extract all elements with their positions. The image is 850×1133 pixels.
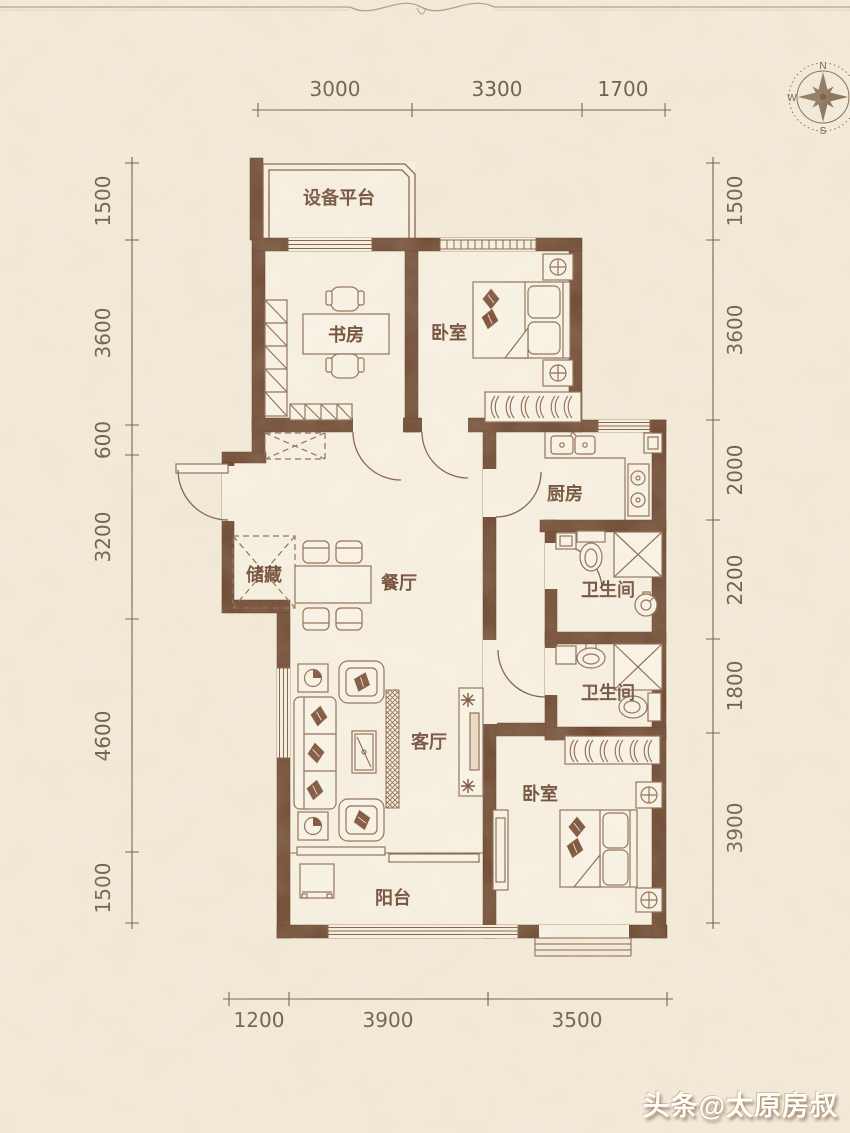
paper-texture: [0, 0, 850, 1133]
floorplan-image: N S W E: [0, 0, 850, 1133]
floorplan-canvas: N S W E: [0, 0, 850, 1133]
watermark: 头条@太原房叔: [643, 1084, 838, 1123]
